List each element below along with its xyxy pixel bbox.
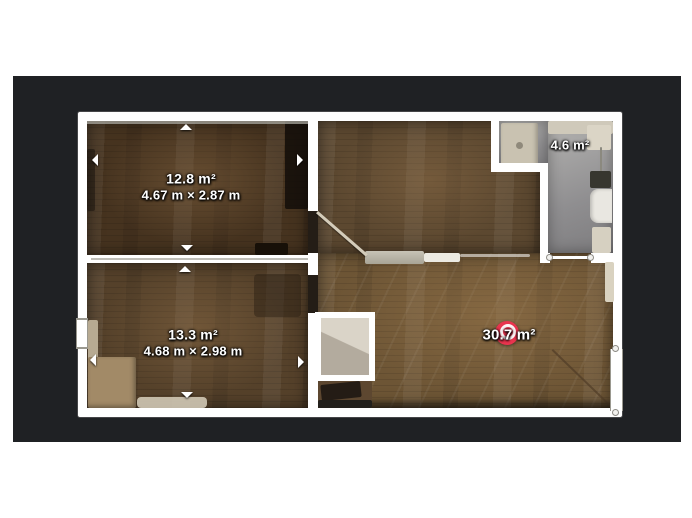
entrance-door [605,262,614,302]
measure-arrow-right-icon [298,356,304,368]
room-label-bathroom: 4.6 m² [551,138,590,155]
entry-doormat [318,400,372,408]
room-dimensions-label: 4.68 m × 2.98 m [144,344,243,361]
room-label-bottom-left: 13.3 m² 4.68 m × 2.98 m [144,325,243,360]
furniture-sideboard [365,251,424,264]
bathroom-sink [587,125,611,150]
door-node-icon [587,254,594,261]
wall-core-line [91,258,313,260]
room-area-label: 30.7 m² [482,325,535,345]
window-symbol-left [76,318,88,349]
wall-inner-edge [87,121,308,124]
closet [315,312,375,381]
bathroom-shelf [592,227,611,253]
furniture-dark-patch [254,274,301,317]
measure-arrow-down-icon [181,245,193,251]
furniture-sideboard-white [424,253,460,262]
room-dimensions-label: 4.67 m × 2.87 m [142,188,241,205]
wall-vertical-mid [308,253,318,275]
measure-arrow-right-icon [297,154,303,166]
window-node-icon [612,345,619,352]
room-label-living-room: 30.7 m² [482,325,535,345]
room-area-label: 13.3 m² [144,325,243,343]
room-area-label: 4.6 m² [551,138,590,155]
window-node-icon [612,409,619,416]
floorplan-canvas[interactable]: 12.8 m² 4.67 m × 2.87 m 13.3 m² 4.68 m ×… [13,76,681,442]
floor-divider-line [460,254,530,257]
measure-arrow-down-icon [181,392,193,398]
washing-machine-knob [516,142,523,149]
door-node-icon [546,254,553,261]
bathroom-dark-gap [590,171,611,188]
faucet-line [600,147,602,173]
window-symbol-right [610,349,623,411]
wall-vertical-upper [308,121,318,211]
window-tick [76,318,88,320]
toilet [590,189,612,223]
wall-vertical-lower [308,313,318,408]
furniture-light-item [137,397,207,408]
window-tick [76,347,88,349]
measure-arrow-up-icon [179,266,191,272]
room-label-top-left: 12.8 m² 4.67 m × 2.87 m [142,169,241,204]
page: 12.8 m² 4.67 m × 2.87 m 13.3 m² 4.68 m ×… [0,0,692,518]
measure-arrow-left-icon [90,354,96,366]
floorplan: 12.8 m² 4.67 m × 2.87 m 13.3 m² 4.68 m ×… [78,112,622,417]
floorplan-interior: 12.8 m² 4.67 m × 2.87 m 13.3 m² 4.68 m ×… [87,121,613,408]
measure-arrow-up-icon [180,124,192,130]
measure-arrow-left-icon [92,154,98,166]
room-area-label: 12.8 m² [142,169,241,187]
wall-bathroom-left [540,163,548,255]
furniture-dark-item [255,243,288,255]
